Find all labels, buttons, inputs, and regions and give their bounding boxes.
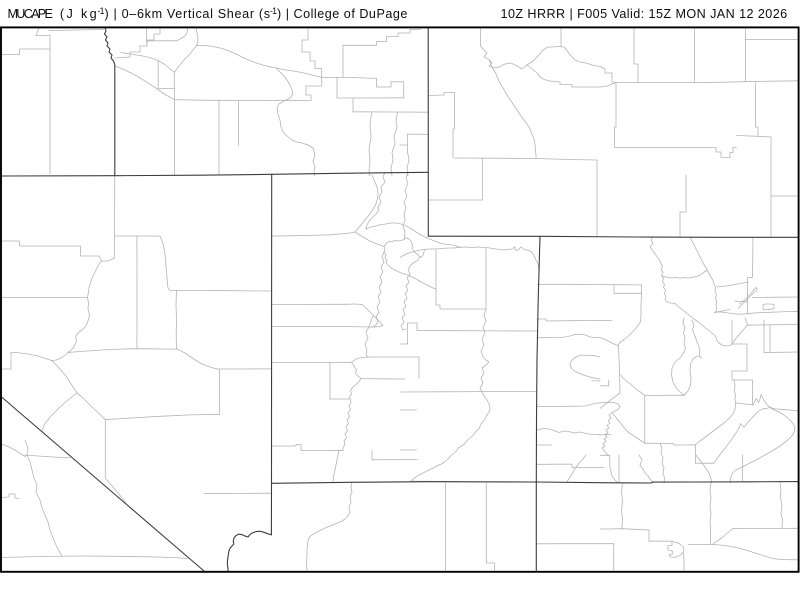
svg-text:MUCAPE: MUCAPE (8, 7, 53, 21)
svg-text:) | College of DuPage: ) | College of DuPage (277, 7, 407, 21)
svg-text:) | 0–6km Vertical Shear (s: ) | 0–6km Vertical Shear (s (105, 7, 271, 21)
svg-text:10Z HRRR | F005 Valid: 15Z MON: 10Z HRRR | F005 Valid: 15Z MON JAN 12 20… (501, 7, 788, 21)
